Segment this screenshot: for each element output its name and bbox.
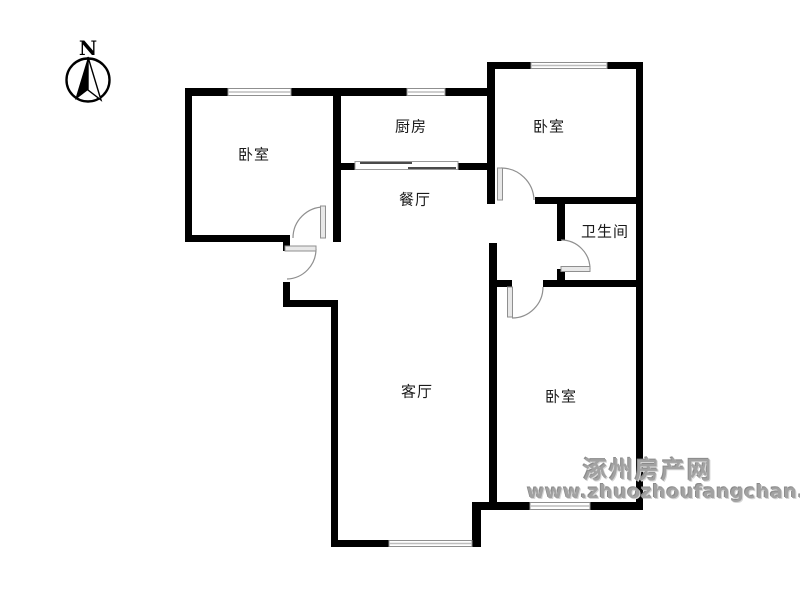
window-icon: [530, 503, 590, 510]
room-label-bedroom-bottom-right: 卧室: [545, 386, 577, 407]
door-bedroom-bottom-right-icon: [508, 287, 544, 318]
room-label-dining-room: 餐厅: [399, 189, 431, 210]
wall-segment: [331, 540, 389, 547]
wall-segment: [535, 197, 643, 204]
wall-segment: [331, 300, 338, 547]
door-entry-icon: [285, 246, 316, 279]
floorplan-drawing: [0, 0, 800, 600]
wall-segment: [333, 88, 341, 242]
wall-segment: [557, 197, 565, 241]
watermark: 涿州房产网 www.zhuozhoufangchan.com: [527, 457, 769, 502]
door-bathroom-icon: [561, 240, 590, 272]
door-bedroom-top-right-icon: [498, 168, 535, 200]
window-icon: [407, 89, 445, 96]
room-label-bedroom-left: 卧室: [238, 144, 270, 165]
wall-segment: [283, 300, 338, 307]
kitchen-pass-through-window-icon: [355, 162, 458, 170]
wall-segment: [543, 280, 643, 287]
wall-segment: [185, 88, 192, 242]
watermark-site-name: 涿州房产网: [527, 457, 769, 483]
floorplan-page: N 卧室 厨房 卧室 餐厅 卫生间 客厅 卧室 涿州房产网 www.zhuozh…: [0, 0, 800, 600]
window-icon: [228, 89, 291, 96]
watermark-site-url: www.zhuozhoufangchan.com: [527, 483, 769, 502]
wall-segment: [489, 243, 497, 510]
room-label-kitchen: 厨房: [395, 116, 427, 137]
room-label-bathroom: 卫生间: [581, 221, 629, 242]
wall-segment: [487, 62, 495, 204]
wall-segment: [185, 235, 290, 242]
room-label-living-room: 客厅: [401, 381, 433, 402]
window-icon: [531, 63, 607, 69]
doors: [285, 168, 590, 318]
wall-segment: [458, 163, 494, 170]
window-icon: [389, 541, 472, 547]
room-label-bedroom-top-right: 卧室: [533, 116, 565, 137]
compass-north-icon: [67, 57, 110, 102]
door-bedroom-left-icon: [293, 206, 326, 238]
compass-north-label: N: [79, 36, 97, 60]
